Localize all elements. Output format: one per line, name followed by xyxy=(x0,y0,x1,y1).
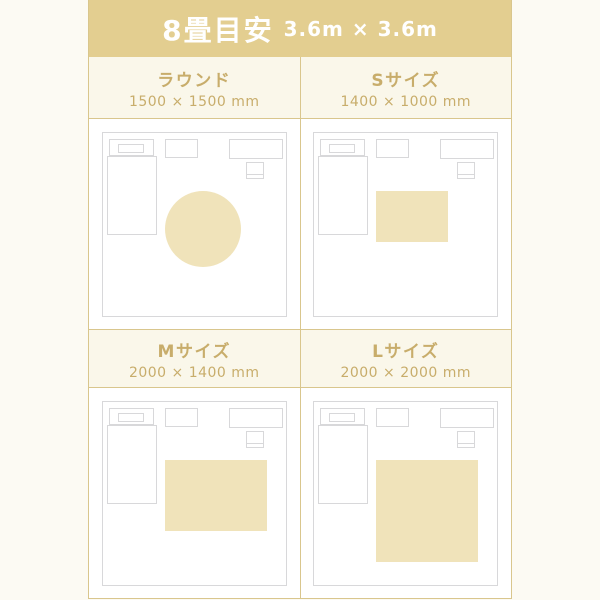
size-name: ラウンド xyxy=(157,66,231,91)
cell-header-round: ラウンド 1500 × 1500 mm xyxy=(89,57,300,119)
size-cell-m: Mサイズ 2000 × 1400 mm xyxy=(89,330,300,598)
bed xyxy=(318,425,368,504)
chair xyxy=(457,431,475,448)
rug-size-guide-card: 8畳目安 3.6m × 3.6m ラウンド 1500 × 1500 mm xyxy=(88,0,512,599)
rug-round xyxy=(165,191,242,268)
size-name: Mサイズ xyxy=(158,337,231,362)
bed-pillow xyxy=(118,144,144,153)
room-diagram xyxy=(102,401,287,586)
size-cell-round: ラウンド 1500 × 1500 mm xyxy=(89,57,300,329)
chair-backrest-line xyxy=(247,443,263,444)
chair-backrest-line xyxy=(458,174,474,175)
size-name: Lサイズ xyxy=(372,337,439,362)
size-dimensions: 2000 × 1400 mm xyxy=(129,365,260,381)
size-dimensions: 2000 × 2000 mm xyxy=(340,365,471,381)
diagram-area xyxy=(301,119,512,329)
rug-m xyxy=(165,460,267,531)
room-diagram xyxy=(313,132,498,317)
bed xyxy=(107,156,157,235)
desk xyxy=(440,408,494,428)
size-cell-s: Sサイズ 1400 × 1000 mm xyxy=(301,57,512,329)
bed-pillow xyxy=(329,413,355,422)
chair-backrest-line xyxy=(458,443,474,444)
room-diagram xyxy=(102,132,287,317)
size-dimensions: 1500 × 1500 mm xyxy=(129,94,260,110)
chair-backrest-line xyxy=(247,174,263,175)
diagram-area xyxy=(89,119,300,329)
cell-header-s: Sサイズ 1400 × 1000 mm xyxy=(301,57,512,119)
cabinet xyxy=(376,139,409,158)
header-band: 8畳目安 3.6m × 3.6m xyxy=(89,0,511,57)
chair xyxy=(246,162,264,179)
cabinet xyxy=(165,408,198,427)
desk xyxy=(229,408,283,428)
bed-pillow xyxy=(118,413,144,422)
chair xyxy=(246,431,264,448)
cabinet xyxy=(376,408,409,427)
size-cell-l: Lサイズ 2000 × 2000 mm xyxy=(301,330,512,598)
cabinet xyxy=(165,139,198,158)
header-room-dimensions: 3.6m × 3.6m xyxy=(284,17,438,41)
cell-header-l: Lサイズ 2000 × 2000 mm xyxy=(301,330,512,388)
room-diagram xyxy=(313,401,498,586)
chair xyxy=(457,162,475,179)
cell-header-m: Mサイズ 2000 × 1400 mm xyxy=(89,330,300,388)
desk xyxy=(229,139,283,159)
size-grid: ラウンド 1500 × 1500 mm Sサイズ 1400 × 1000 xyxy=(89,57,511,598)
rug-l xyxy=(376,460,478,562)
header-title: 8畳目安 xyxy=(162,9,273,49)
size-name: Sサイズ xyxy=(371,66,440,91)
rug-s xyxy=(376,191,447,242)
size-dimensions: 1400 × 1000 mm xyxy=(340,94,471,110)
bed xyxy=(318,156,368,235)
desk xyxy=(440,139,494,159)
bed-pillow xyxy=(329,144,355,153)
diagram-area xyxy=(301,388,512,598)
bed xyxy=(107,425,157,504)
diagram-area xyxy=(89,388,300,598)
